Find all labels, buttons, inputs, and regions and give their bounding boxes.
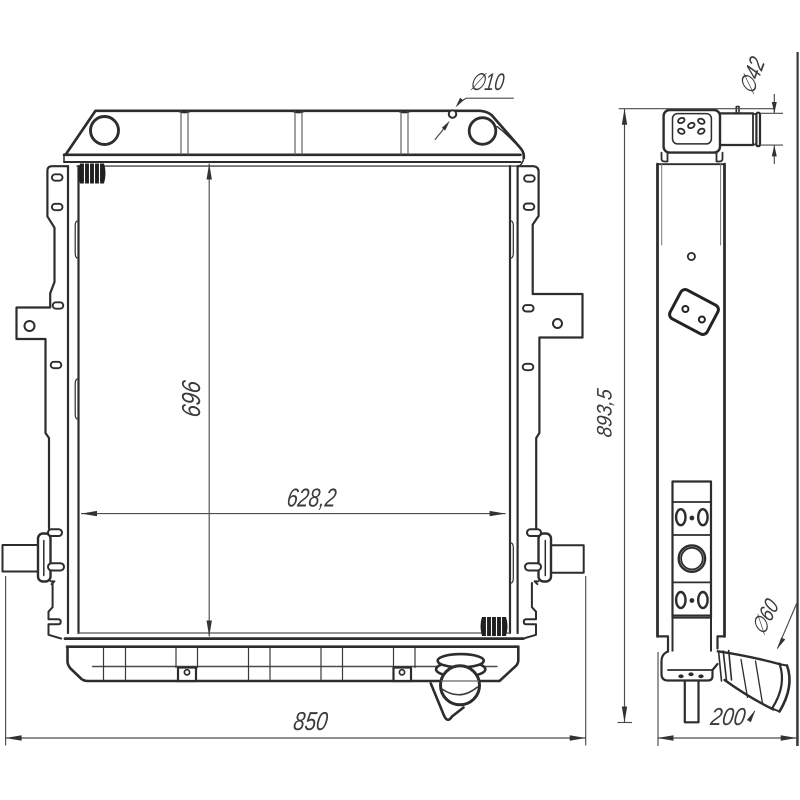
svg-text:∅10: ∅10 — [468, 69, 506, 96]
svg-text:628,2: 628,2 — [285, 482, 339, 512]
svg-text:893,5: 893,5 — [594, 387, 617, 438]
svg-text:850: 850 — [292, 706, 331, 736]
svg-text:200: 200 — [708, 704, 747, 731]
svg-text:696: 696 — [176, 378, 206, 419]
